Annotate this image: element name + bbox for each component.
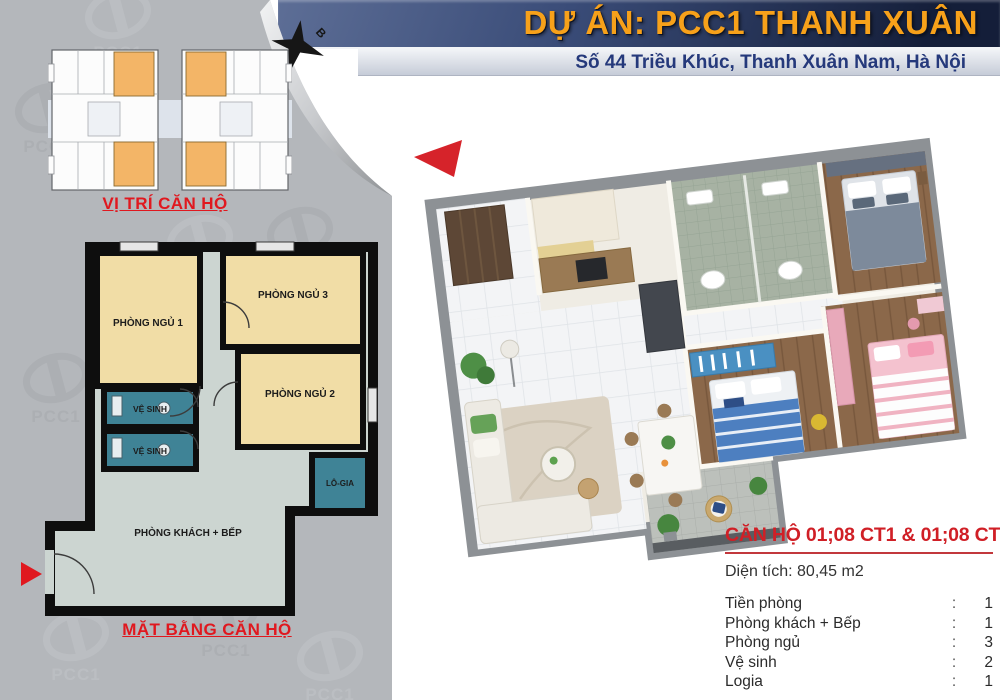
spec-label: Tiền phòng — [725, 594, 941, 614]
table-row: Vệ sinh : 2 — [725, 653, 993, 673]
cooktop — [575, 257, 607, 282]
table-row: Tiền phòng : 1 — [725, 594, 993, 614]
unit-location-caption: VỊ TRÍ CĂN HỘ — [55, 194, 275, 214]
room-label: LÔ-GIA — [326, 479, 354, 488]
svg-text:B: B — [313, 25, 329, 41]
spec-value: 1 — [967, 614, 993, 634]
spec-value: 3 — [967, 633, 993, 653]
project-address: Số 44 Triều Khúc, Thanh Xuân Nam, Hà Nội — [358, 49, 1000, 76]
entrance-arrow-icon — [21, 562, 42, 586]
spec-label: Phòng khách + Bếp — [725, 614, 941, 634]
spec-label: Vệ sinh — [725, 653, 941, 673]
room-label: PHÒNG KHÁCH + BẾP — [134, 526, 242, 539]
room-label: VỆ SINH — [133, 445, 167, 456]
site-plan — [48, 44, 292, 196]
kitchen-cabinets — [532, 189, 619, 249]
spec-value: 1 — [967, 594, 993, 614]
spec-label: Phòng ngủ — [725, 633, 941, 653]
entry-arrow-icon — [414, 140, 462, 177]
unit-spec-table: Tiền phòng : 1 Phòng khách + Bếp : 1 Phò… — [725, 594, 993, 692]
spec-value: 1 — [967, 672, 993, 692]
room-label: VỆ SINH — [133, 403, 167, 414]
unit-info-panel: CĂN HỘ 01;08 CT1 & 01;08 CT2 Diện tích: … — [725, 524, 993, 692]
kid-desk — [917, 296, 945, 314]
fridge-cabinet — [639, 280, 685, 352]
dining-table — [638, 415, 703, 495]
unit-title: CĂN HỘ 01;08 CT1 & 01;08 CT2 — [725, 524, 993, 554]
table-row: Phòng ngủ : 3 — [725, 633, 993, 653]
unit-area: Diện tích: 80,45 m2 — [725, 563, 993, 581]
spec-label: Logia — [725, 672, 941, 692]
room-label: PHÒNG NGỦ 1 — [113, 316, 183, 329]
table-row: Phòng khách + Bếp : 1 — [725, 614, 993, 634]
floor-plan-2d: PHÒNG NGỦ 1 PHÒNG NGỦ 3 PHÒNG NGỦ 2 VỆ S… — [18, 240, 380, 630]
floor-plan-3d-render — [390, 126, 1000, 591]
spec-value: 2 — [967, 653, 993, 673]
room-label: PHÒNG NGỦ 3 — [258, 288, 328, 301]
floor-plan-caption: MẶT BẰNG CĂN HỘ — [97, 620, 317, 640]
apartment-3d — [432, 145, 970, 575]
table-row: Logia : 1 — [725, 672, 993, 692]
room-label: PHÒNG NGỦ 2 — [265, 387, 335, 400]
